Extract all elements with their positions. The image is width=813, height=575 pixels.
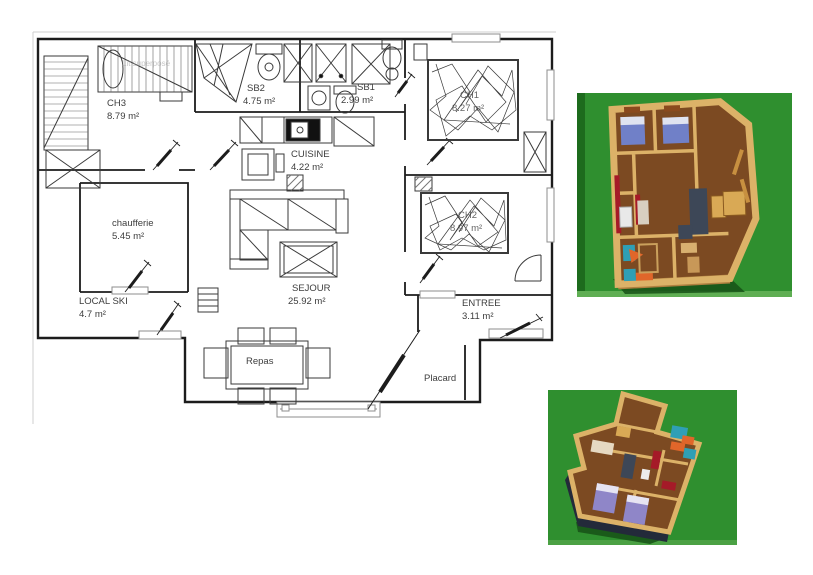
room-area-sejour: 25.92 m² bbox=[288, 296, 326, 307]
hatch-kitchen bbox=[287, 175, 303, 191]
room-area-entree: 3.11 m² bbox=[462, 311, 494, 322]
windows bbox=[112, 34, 554, 417]
room-label-local-ski: LOCAL SKI bbox=[79, 296, 128, 307]
room-label-sb1: SB1 bbox=[357, 82, 375, 93]
render-3d-bottom bbox=[548, 390, 737, 545]
room-area-ch2: 8.97 m² bbox=[450, 223, 482, 234]
placard-label: Placard bbox=[424, 373, 456, 384]
room-label-ch1: CH1 bbox=[460, 90, 479, 101]
room-area-sb2: 4.75 m² bbox=[243, 96, 275, 107]
room-label-ch3: CH3 bbox=[107, 98, 126, 109]
room-area-ch1: 8.27 m² bbox=[452, 103, 484, 114]
room-label-chaufferie: chaufferie bbox=[112, 218, 154, 229]
bunk-bed-label: Lit superposé bbox=[122, 59, 171, 68]
room-area-local-ski: 4.7 m² bbox=[79, 309, 106, 320]
room-area-chaufferie: 5.45 m² bbox=[112, 231, 144, 242]
room-label-cuisine: CUISINE bbox=[291, 149, 330, 160]
floor-plan-sheet: Lit superposé CH3 8.79 m² SB2 4.75 m² SB… bbox=[0, 0, 813, 575]
floor-plan-2d: Lit superposé CH3 8.79 m² SB2 4.75 m² SB… bbox=[30, 25, 565, 430]
room-area-sb1: 2.99 m² bbox=[341, 95, 373, 106]
room-label-sejour: SEJOUR bbox=[292, 283, 331, 294]
room-area-ch3: 8.79 m² bbox=[107, 111, 139, 122]
hatch-ch2 bbox=[415, 177, 432, 191]
render-3d-top bbox=[577, 93, 792, 297]
room-label-entree: ENTREE bbox=[462, 298, 501, 309]
repas-label: Repas bbox=[246, 356, 274, 367]
room-area-cuisine: 4.22 m² bbox=[291, 162, 323, 173]
room-label-sb2: SB2 bbox=[247, 83, 265, 94]
room-label-ch2: CH2 bbox=[458, 210, 477, 221]
house-3d-top bbox=[612, 101, 758, 290]
placard-sliding-door bbox=[368, 330, 420, 409]
